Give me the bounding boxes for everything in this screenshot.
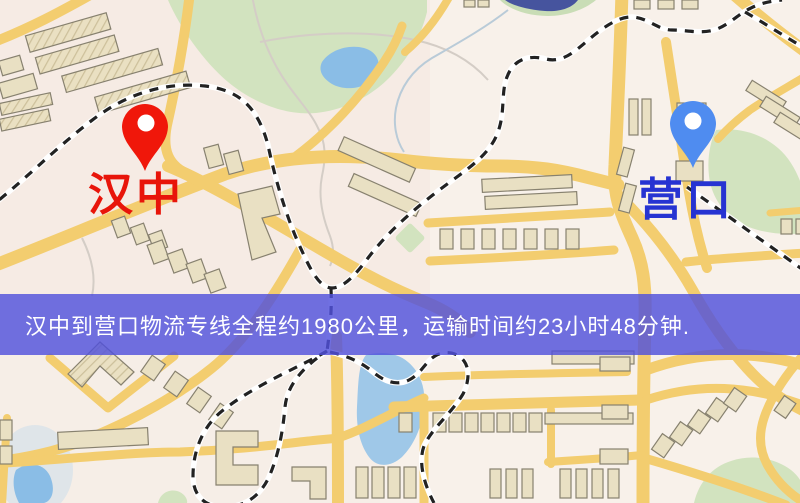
- map-canvas: [0, 0, 800, 503]
- route-info-text: 汉中到营口物流专线全程约1980公里，运输时间约23小时48分钟.: [25, 309, 690, 341]
- route-info-banner: 汉中到营口物流专线全程约1980公里，运输时间约23小时48分钟.: [0, 294, 800, 355]
- destination-city-label: 营口: [638, 177, 734, 222]
- map-screenshot: 汉中 营口 汉中到营口物流专线全程约1980公里，运输时间约23小时48分钟.: [0, 0, 800, 503]
- origin-city-label: 汉中: [88, 172, 184, 217]
